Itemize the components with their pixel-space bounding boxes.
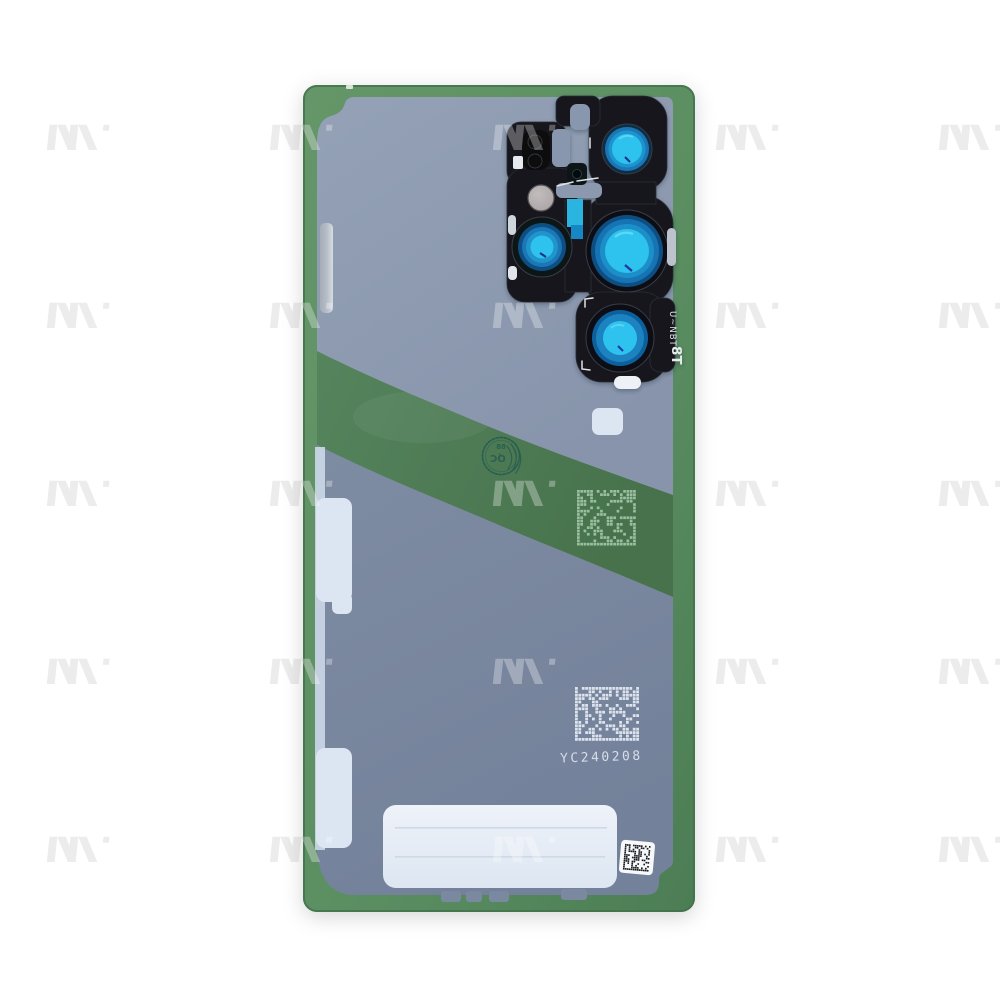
watermark-m-logo — [47, 125, 110, 150]
camera-engraving-model: U~NBT — [667, 311, 677, 347]
watermark-m-logo — [939, 659, 1000, 684]
adhesive-tab-lower — [316, 748, 352, 848]
liner-bottom-tab — [561, 889, 587, 900]
module-bottom-pill — [614, 376, 641, 389]
camera-engraving-size: 8T — [668, 346, 684, 365]
glass-top-notch — [346, 85, 353, 89]
phone-back-cover: 88 QC YC240208 — [303, 85, 695, 916]
module-liner-gap — [552, 129, 570, 167]
datamatrix-sticker — [619, 840, 656, 876]
camera-lens-ultrawide — [512, 217, 572, 277]
watermark-m-logo — [47, 659, 110, 684]
watermark-m-logo — [47, 303, 110, 328]
product-photo-stage: 88 QC YC240208 — [0, 0, 1000, 1000]
qc-stamp-number: 88 — [496, 443, 506, 451]
watermark-m-logo — [716, 837, 779, 862]
label-fold-line — [395, 827, 607, 829]
watermark-m-logo — [47, 481, 110, 506]
module-liner-gap — [570, 104, 590, 130]
module-side-pill-silver — [667, 228, 676, 266]
liner-bottom-tab — [441, 891, 461, 902]
watermark-m-logo — [939, 481, 1000, 506]
liner-bottom-tab — [466, 891, 482, 902]
watermark-m-logo — [939, 303, 1000, 328]
adhesive-tab-mid — [316, 498, 352, 602]
module-side-pill — [508, 215, 516, 235]
watermark-m-logo — [939, 837, 1000, 862]
module-bridge — [596, 182, 656, 204]
watermark-m-logo — [47, 837, 110, 862]
flash-led-hole — [528, 135, 542, 149]
camera-lens-periscope — [586, 304, 654, 372]
mic-hole — [573, 170, 582, 179]
laser-af-sensor — [528, 185, 554, 211]
flash-led-hole — [528, 154, 542, 168]
liner-bottom-tab — [489, 891, 509, 902]
watermark-m-logo — [716, 659, 779, 684]
adhesive-tab-silver — [320, 223, 333, 313]
label-sticker-body — [383, 805, 617, 888]
label-fold-line — [395, 856, 605, 858]
camera-lens-top — [602, 124, 652, 174]
flash-side-window — [513, 156, 523, 169]
watermark-m-logo — [939, 125, 1000, 150]
adhesive-tab-small — [592, 408, 623, 435]
adhesive-tab-mid-stub — [332, 593, 352, 614]
film-strip-teal — [567, 199, 583, 227]
film-strip-teal-dark — [571, 225, 583, 239]
etched-serial-text: YC240208 — [560, 749, 643, 767]
watermark-m-logo — [716, 303, 779, 328]
watermark-m-logo — [716, 481, 779, 506]
phone-back-cover-photo: 88 QC YC240208 — [303, 85, 695, 912]
camera-lens-main — [586, 210, 668, 292]
label-sticker — [383, 805, 617, 888]
qc-stamp-text: QC — [490, 452, 506, 463]
module-side-pill — [508, 266, 517, 280]
watermark-m-logo — [716, 125, 779, 150]
